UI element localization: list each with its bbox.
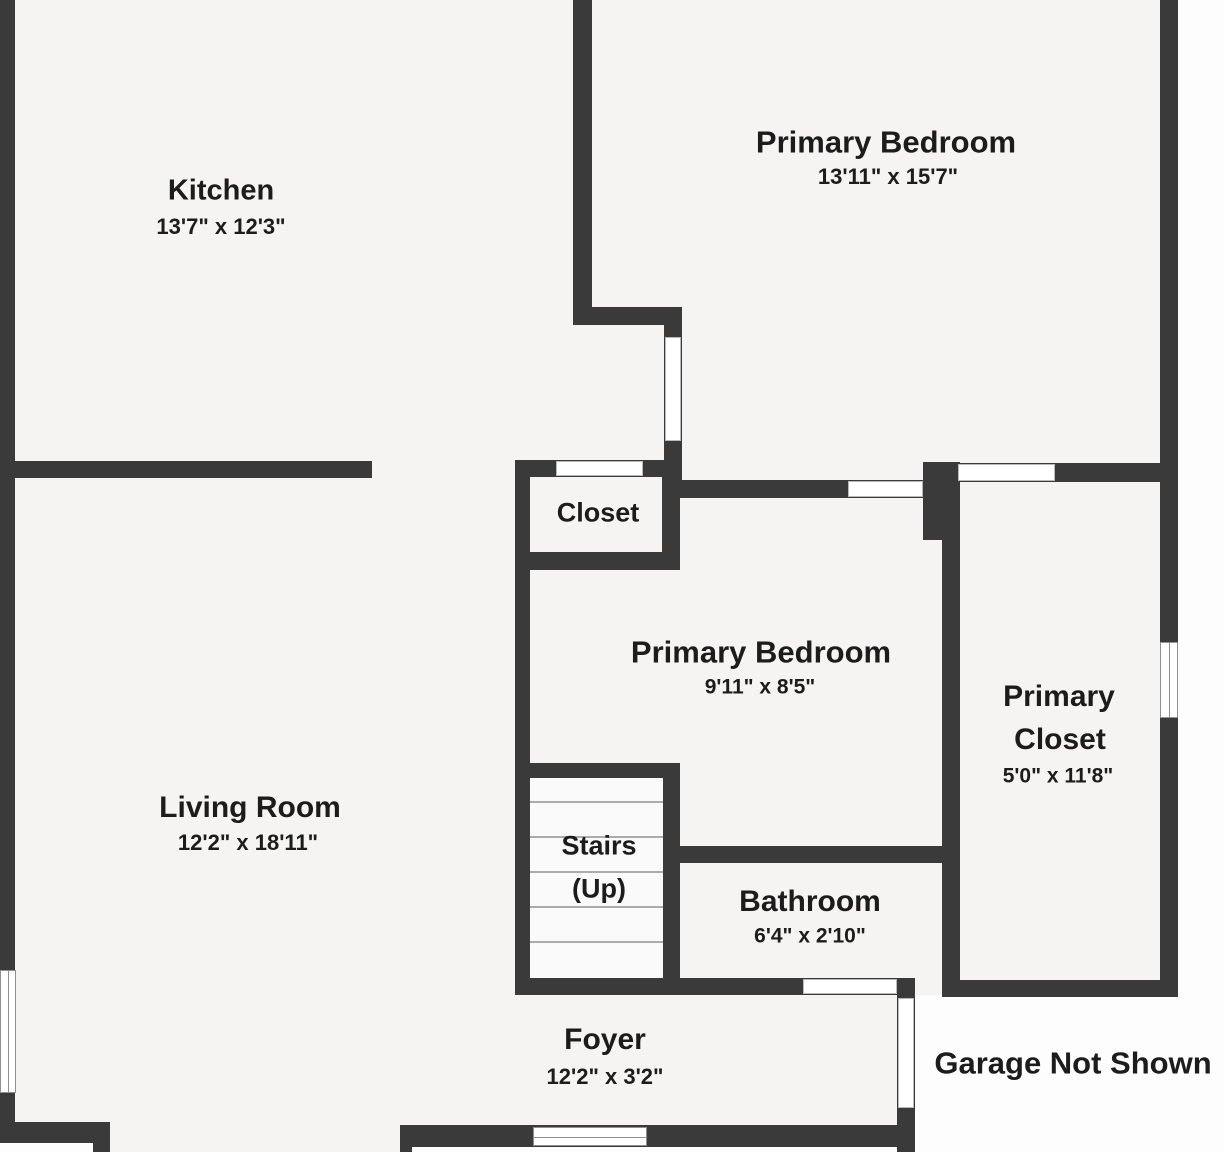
wall-primary-closet-left bbox=[942, 497, 960, 997]
garage-note: Garage Not Shown bbox=[934, 1048, 1211, 1079]
room-label-living-room: Living Room bbox=[159, 793, 341, 823]
stair-tread bbox=[530, 906, 663, 908]
door-opening-closet bbox=[556, 461, 643, 476]
wall-kitchen-bedroom-divider bbox=[573, 0, 592, 325]
room-dims-primary-bedroom-upper: 13'11" x 15'7" bbox=[818, 166, 958, 188]
window-pane-line bbox=[534, 1137, 646, 1138]
window-living-room-left bbox=[0, 970, 16, 1093]
wall-left-upper bbox=[0, 0, 15, 970]
room-label-foyer: Foyer bbox=[564, 1025, 646, 1055]
stair-tread bbox=[530, 801, 663, 803]
outside-area-bottom-left bbox=[0, 1143, 93, 1152]
wall-foyer-bottom-stub bbox=[400, 1125, 412, 1152]
room-label-primary-bedroom-lower: Primary Bedroom bbox=[631, 637, 891, 668]
wall-bottom-left-stub bbox=[93, 1143, 110, 1152]
room-label-closet: Closet bbox=[557, 500, 640, 527]
window-foyer-bottom bbox=[533, 1127, 647, 1146]
door-opening-garage bbox=[898, 998, 914, 1108]
room-label-kitchen: Kitchen bbox=[168, 177, 274, 206]
wall-west-interior bbox=[515, 460, 530, 995]
room-label-stairs-line2: (Up) bbox=[572, 876, 626, 903]
outside-area-below-foyer bbox=[412, 1147, 915, 1152]
room-dims-kitchen: 13'7" x 12'3" bbox=[156, 216, 285, 238]
room-dims-primary-closet: 5'0" x 11'8" bbox=[1003, 766, 1114, 787]
room-dims-primary-bedroom-lower: 9'11" x 8'5" bbox=[705, 677, 816, 698]
wall-bottom-left bbox=[0, 1122, 110, 1143]
room-label-primary-closet-line1: Primary bbox=[1003, 682, 1115, 712]
wall-closet-bottom bbox=[515, 552, 680, 570]
room-dims-living-room: 12'2" x 18'11" bbox=[178, 832, 318, 854]
door-opening-bathroom bbox=[803, 979, 897, 994]
floor-plan: Kitchen 13'7" x 12'3" Primary Bedroom 13… bbox=[0, 0, 1224, 1152]
door-opening-kitchen-bedroom bbox=[665, 337, 681, 441]
window-pane-line bbox=[1169, 643, 1170, 717]
wall-right-exterior bbox=[1160, 0, 1178, 997]
wall-kitchen-living-divider bbox=[0, 461, 372, 478]
wall-stairs-right bbox=[663, 763, 680, 995]
door-opening-primary-closet bbox=[958, 464, 1055, 481]
window-primary-closet-right bbox=[1160, 642, 1178, 718]
room-label-stairs-line1: Stairs bbox=[561, 833, 636, 860]
room-dims-bathroom: 6'4" x 2'10" bbox=[754, 926, 866, 947]
room-label-primary-bedroom-upper: Primary Bedroom bbox=[756, 127, 1016, 158]
wall-primary-closet-bottom bbox=[942, 980, 1178, 997]
room-dims-foyer: 12'2" x 3'2" bbox=[547, 1066, 664, 1088]
wall-bathroom-top bbox=[663, 846, 960, 863]
wall-stairs-top bbox=[515, 763, 680, 778]
outside-area-right bbox=[1178, 0, 1224, 1152]
door-opening-bedroom2 bbox=[848, 481, 923, 497]
stair-tread bbox=[530, 941, 663, 943]
room-label-bathroom: Bathroom bbox=[739, 887, 881, 917]
room-label-primary-closet-line2: Closet bbox=[1014, 725, 1106, 755]
wall-foyer-bottom bbox=[400, 1125, 915, 1147]
window-pane-line bbox=[8, 971, 9, 1092]
